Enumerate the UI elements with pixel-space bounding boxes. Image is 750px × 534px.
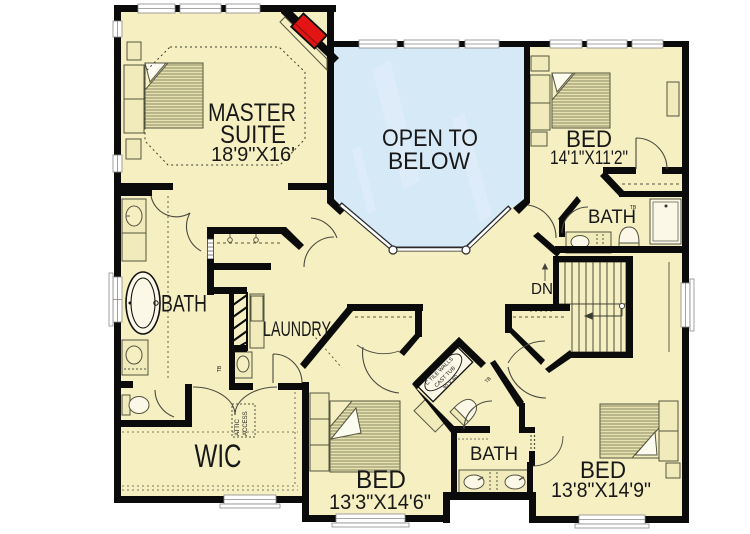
- svg-text:DN: DN: [531, 281, 553, 298]
- svg-text:BATH: BATH: [161, 291, 207, 318]
- svg-text:BELOW: BELOW: [388, 148, 470, 175]
- svg-text:18'9"X16': 18'9"X16': [211, 144, 295, 166]
- svg-text:TB: TB: [630, 205, 637, 211]
- svg-text:ATTIC: ATTIC: [235, 418, 241, 436]
- svg-text:13'8"X14'9": 13'8"X14'9": [551, 479, 651, 502]
- svg-text:13'3"X14'6": 13'3"X14'6": [329, 491, 431, 514]
- svg-text:BATH: BATH: [470, 444, 518, 465]
- svg-text:BATH: BATH: [588, 207, 636, 228]
- svg-text:LAUNDRY: LAUNDRY: [263, 318, 331, 341]
- svg-text:14'1"X11'2": 14'1"X11'2": [550, 148, 628, 169]
- svg-text:TB: TB: [217, 365, 223, 372]
- svg-text:WIC: WIC: [195, 438, 242, 474]
- svg-text:BED: BED: [356, 466, 406, 494]
